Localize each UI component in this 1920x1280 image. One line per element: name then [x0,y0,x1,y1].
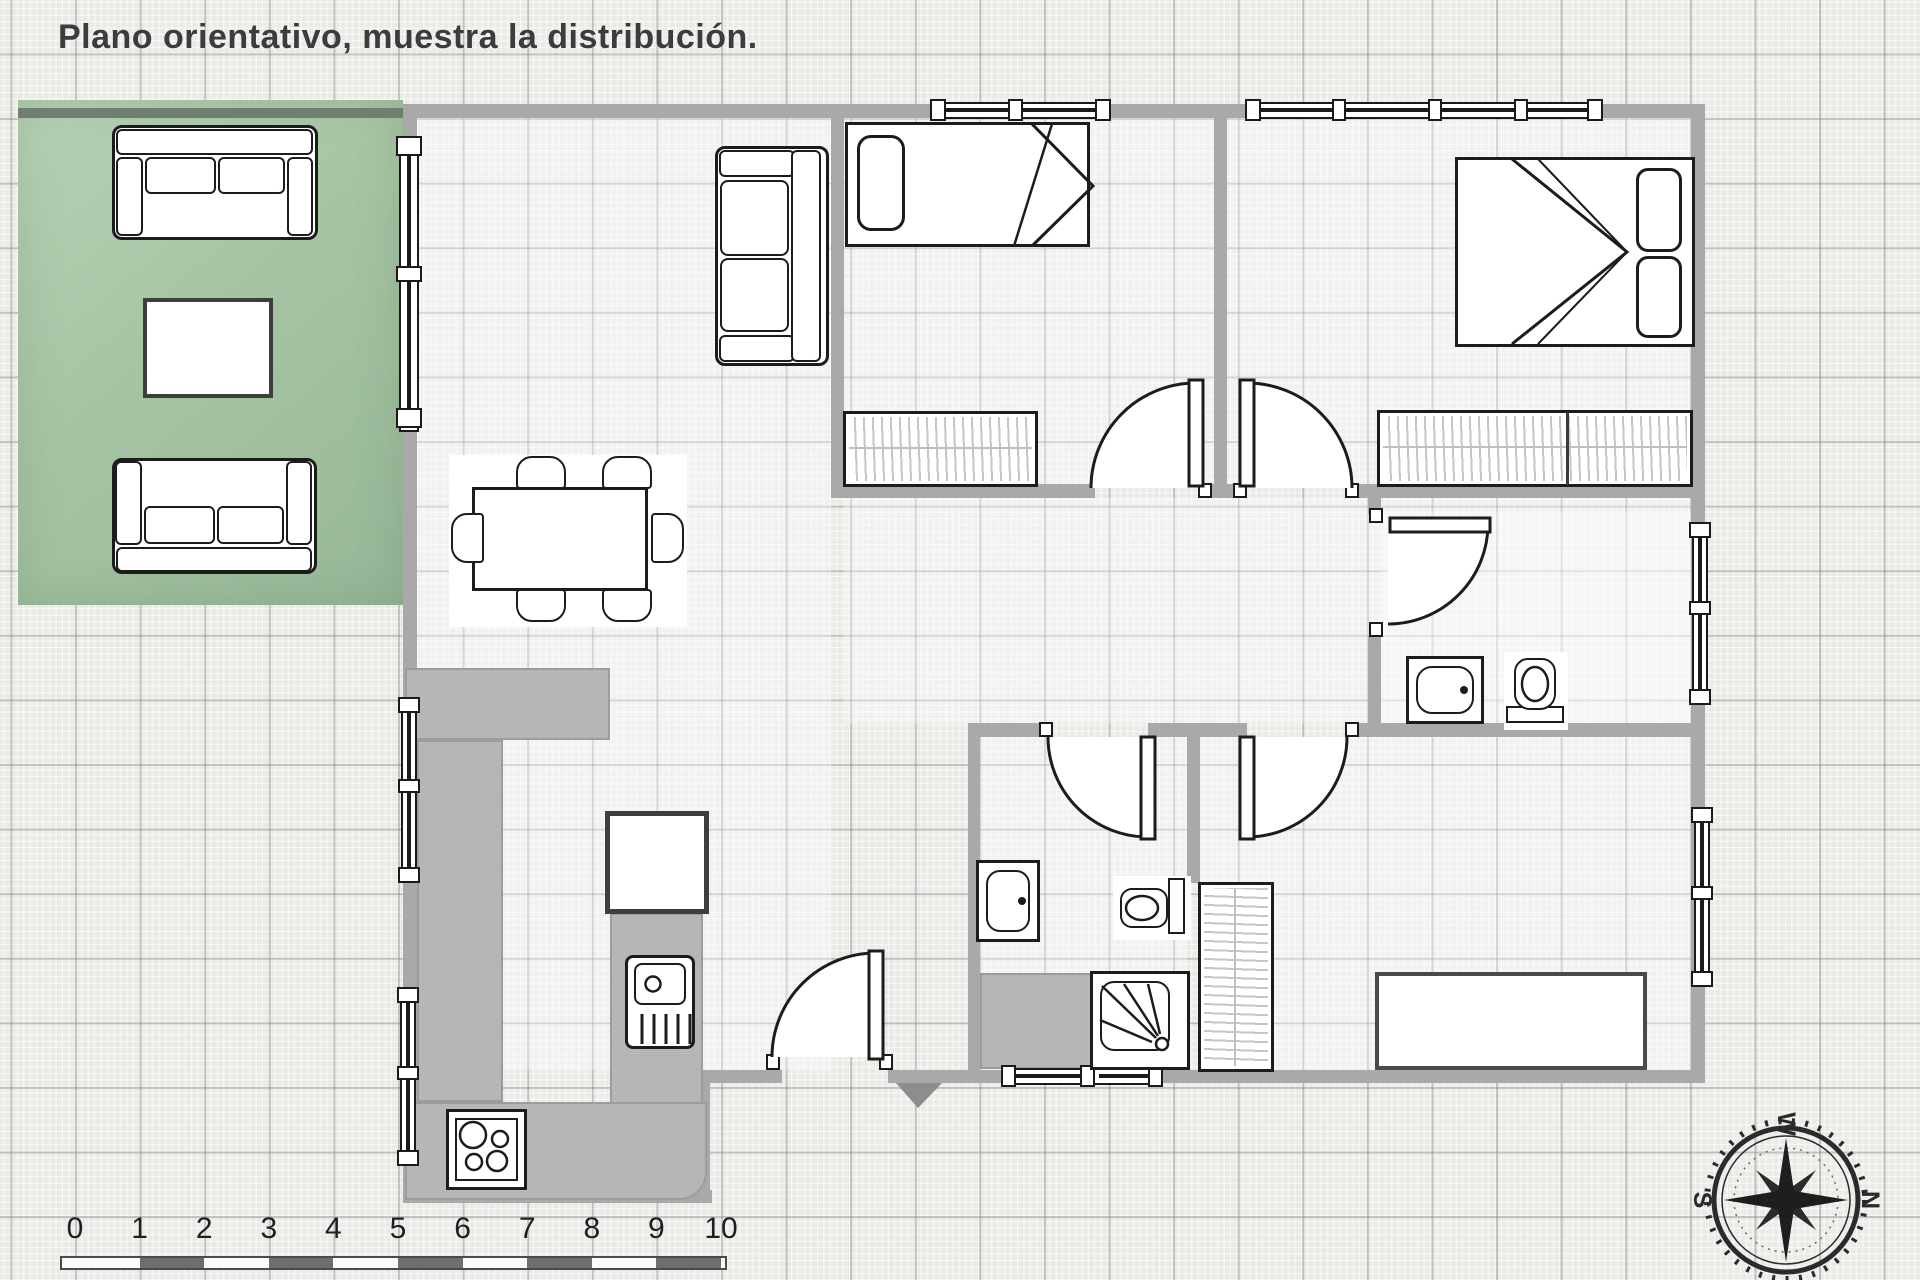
scale-bar-segment [527,1258,592,1268]
right-window2-divider [1691,886,1713,900]
floor-plan-canvas: Plano orientativo, muestra la distribuci… [0,0,1920,1280]
door-jamb [1369,508,1383,523]
kitchen-window1-cap [398,867,420,883]
scale-number: 0 [67,1212,84,1246]
compass-dotted [1734,1148,1838,1252]
bedroom1-window-divider [1008,99,1023,121]
page-title: Plano orientativo, muestra la distribuci… [58,18,758,57]
compass-label-S: S [1688,1192,1716,1209]
scale-bar-segment [398,1258,463,1268]
master-window-divider [1428,99,1442,121]
dining-chair [516,456,566,489]
wardrobe-vertical-hatch [1204,888,1268,1066]
scale-number: 1 [131,1212,148,1246]
stove-inner [455,1118,518,1181]
sofa-top-arm [116,157,143,236]
kitchen-island [605,811,709,914]
living-window-line [407,146,411,426]
door-jamb [1233,483,1247,498]
wardrobe-vertical-rail [1234,888,1236,1066]
door-jamb [766,1054,780,1070]
kitchen-sink-basin [634,963,686,1005]
sofa-top-cushion [218,157,285,194]
sofa-bottom-back [116,547,312,572]
bathM-toilet-bowl [1120,888,1168,928]
dining-table [472,487,648,591]
living-window-cap [396,136,422,156]
bathR-toilet-bowl [1514,658,1556,710]
compass-tick-ring [1707,1121,1865,1279]
door-jamb [1198,483,1212,498]
bedroom1-window-cap [1095,99,1111,121]
kitchen-counter-top [405,668,610,740]
living-room-top-wall [18,108,403,118]
bottom-window1-line [1010,1074,1084,1078]
scale-number: 4 [325,1212,342,1246]
master-window-cap [1587,99,1603,121]
compass-ring-inner [1722,1136,1850,1264]
bedroom-divider-wall [1214,118,1227,498]
scale-number: 6 [454,1212,471,1246]
scale-number: 7 [519,1212,536,1246]
scale-bar-segment [269,1258,334,1268]
door-jamb [1345,483,1359,498]
entry-swoosh [896,1083,942,1108]
bottom-window2-line [1099,1074,1152,1078]
compass-label-N: N [1856,1191,1884,1209]
wardrobe-master-rail [1383,446,1687,448]
living-window-cap [396,408,422,428]
bathM-vanity [980,973,1092,1069]
master-window-divider [1332,99,1346,121]
master-window-divider [1514,99,1528,121]
kitchen-window2-cap [397,1150,419,1166]
right-window2-cap [1691,971,1713,987]
bottom-window1-cap [1001,1065,1016,1087]
compass-label-W: W [1772,1112,1800,1136]
scale-number: 10 [704,1212,737,1246]
coffee-table [143,298,273,398]
compass-star-diagonal [1756,1170,1816,1230]
sofa-bottom-cushion [217,506,284,544]
sofa-top-arm [287,157,313,236]
sofa-hall-arm [719,335,795,362]
dining-chair [516,589,566,622]
scale-bar-segment [656,1258,721,1268]
kitchen-window1-divider [398,779,420,793]
scale-number: 2 [196,1212,213,1246]
sofa-hall-arm [719,150,795,177]
scale-number: 9 [648,1212,665,1246]
right-window2-cap [1691,807,1713,823]
door-jamb [879,1054,893,1070]
door-leaf [869,951,883,1059]
master-window-cap [1245,99,1261,121]
living-window-divider [396,266,422,282]
sofa-top-cushion [145,157,216,194]
wardrobe-master-divider [1566,412,1569,485]
bathM-sink-basin [986,870,1030,932]
sofa-bottom-cushion [144,506,215,544]
sofa-hall-back [791,150,821,362]
kitchen-window2-divider [397,1066,419,1080]
right-window1-divider [1689,601,1711,615]
compass-star-cardinal [1724,1138,1848,1262]
sofa-bottom-arm [286,461,312,545]
master-window-line [1254,108,1594,112]
dining-chair [651,513,684,563]
sofa-hall-cushion [720,180,789,256]
sofa-bottom-arm [115,461,142,545]
kitchen-counter-left [417,740,503,1102]
bed-double-pillow [1636,168,1682,252]
door-jamb [1369,622,1383,637]
dining-chair [451,513,484,563]
bathR-left-wall-bottom [1368,636,1381,737]
wardrobe-bedroom1-hatch [849,417,1032,481]
right-window1-cap [1689,689,1711,705]
kitchen-window1-cap [398,697,420,713]
bathM-divider-wall [1187,723,1200,883]
scale-number: 5 [390,1212,407,1246]
door-jamb [1039,722,1053,737]
sofa-hall-cushion [720,258,789,332]
door-jamb [1345,722,1359,737]
compass-ring [1714,1128,1858,1272]
scale-number: 8 [583,1212,600,1246]
sofa-top-back [116,129,313,155]
kitchen-window2-cap [397,987,419,1003]
bed-bottom-right [1375,972,1647,1070]
bed-double-pillow [1636,256,1682,338]
dining-chair [602,589,652,622]
scale-number: 3 [260,1212,277,1246]
wardrobe-bedroom1-rail [849,447,1032,449]
entry-wall-left [697,1070,782,1083]
dining-chair [602,456,652,489]
right-window1-cap [1689,522,1711,538]
bedroom1-window-cap [930,99,946,121]
bathM-toilet-tank [1168,878,1185,934]
bathR-sink-basin [1416,666,1474,714]
corridor-wall-b [1210,484,1234,498]
scale-bar-segment [140,1258,205,1268]
bed-single-pillow [857,135,905,231]
wardrobe-master-hatch [1383,416,1687,481]
shower-tray [1100,981,1170,1051]
